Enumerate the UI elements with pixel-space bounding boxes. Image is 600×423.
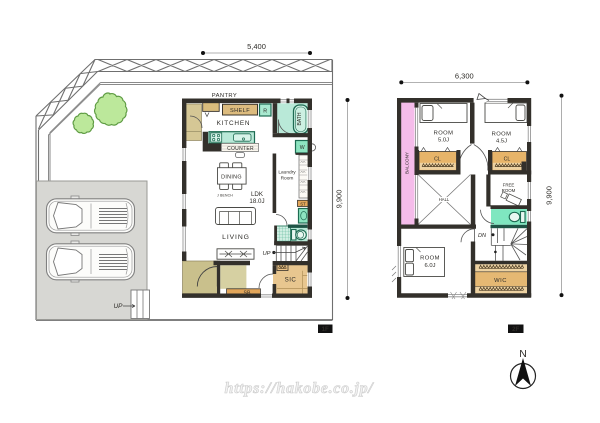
svg-text:18.0J: 18.0J: [249, 198, 264, 205]
svg-text:COUNTER: COUNTER: [227, 146, 254, 152]
svg-text:DN: DN: [478, 233, 487, 239]
svg-text:UP: UP: [262, 251, 270, 257]
svg-text:Room: Room: [281, 176, 294, 182]
svg-text:5,400: 5,400: [247, 42, 266, 51]
svg-text:R: R: [263, 108, 267, 114]
svg-text:9,900: 9,900: [335, 190, 344, 209]
svg-text:6,300: 6,300: [455, 71, 474, 80]
svg-text:https://hakobe.co.jp/: https://hakobe.co.jp/: [225, 380, 375, 397]
svg-text:W: W: [300, 145, 305, 151]
svg-text:2F: 2F: [512, 326, 519, 333]
svg-text:6.0J: 6.0J: [425, 263, 436, 269]
svg-text:CL: CL: [434, 157, 441, 163]
svg-text:KITCHEN: KITCHEN: [217, 120, 251, 127]
svg-text:ST: ST: [300, 201, 306, 206]
svg-text:1F: 1F: [322, 326, 329, 333]
svg-text:FREE: FREE: [503, 183, 515, 188]
svg-text:SHELF: SHELF: [230, 108, 250, 114]
svg-text:Laundry: Laundry: [278, 170, 296, 176]
svg-text:ROOM: ROOM: [492, 132, 512, 138]
svg-text:SIC: SIC: [285, 277, 297, 284]
svg-text:4.5J: 4.5J: [496, 139, 507, 145]
svg-text:HALL: HALL: [439, 197, 450, 202]
svg-text:LDK: LDK: [251, 191, 264, 198]
svg-text:J BENCH: J BENCH: [217, 194, 233, 198]
svg-text:ROOM: ROOM: [420, 256, 440, 262]
svg-text:UP: UP: [113, 303, 123, 310]
svg-text:PANTRY: PANTRY: [212, 93, 237, 99]
svg-text:BATH: BATH: [297, 112, 303, 125]
svg-text:5.0J: 5.0J: [438, 138, 449, 144]
svg-text:LIVING: LIVING: [222, 234, 250, 241]
svg-text:BALCONY: BALCONY: [405, 152, 410, 174]
svg-text:9,900: 9,900: [545, 186, 554, 205]
svg-text:CL: CL: [504, 157, 511, 163]
svg-text:WIC: WIC: [494, 278, 507, 284]
svg-text:DINING: DINING: [221, 175, 242, 181]
svg-text:ROOM: ROOM: [434, 131, 454, 137]
